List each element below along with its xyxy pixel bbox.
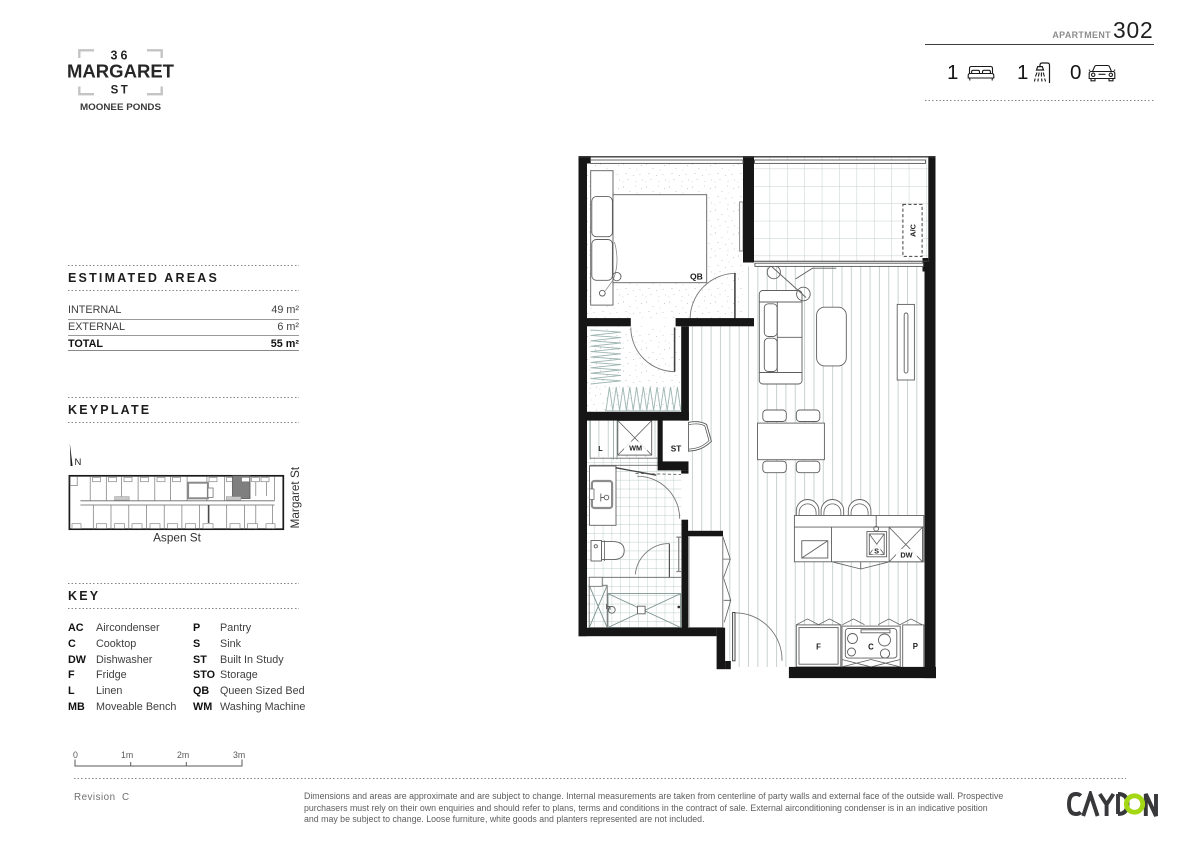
svg-text:L: L	[598, 444, 603, 453]
svg-text:N: N	[75, 457, 82, 468]
svg-text:DW: DW	[900, 551, 912, 560]
svg-text:ST: ST	[671, 445, 681, 454]
svg-text:2m: 2m	[177, 750, 189, 760]
svg-text:MOONEE PONDS: MOONEE PONDS	[80, 102, 161, 112]
svg-text:P: P	[913, 642, 918, 651]
svg-text:3m: 3m	[233, 750, 245, 760]
svg-text:ST: ST	[111, 85, 131, 97]
svg-text:C: C	[868, 643, 874, 652]
svg-text:QB: QB	[690, 272, 703, 282]
svg-text:S: S	[874, 547, 879, 556]
svg-text:1m: 1m	[121, 750, 133, 760]
svg-text:0: 0	[73, 750, 78, 760]
svg-text:Aspen St: Aspen St	[153, 531, 202, 545]
svg-text:F: F	[816, 643, 821, 652]
svg-text:MARGARET: MARGARET	[67, 61, 175, 82]
svg-text:Margaret St: Margaret St	[288, 466, 302, 528]
svg-text:A/C: A/C	[909, 223, 918, 236]
svg-text:WM: WM	[629, 444, 642, 453]
